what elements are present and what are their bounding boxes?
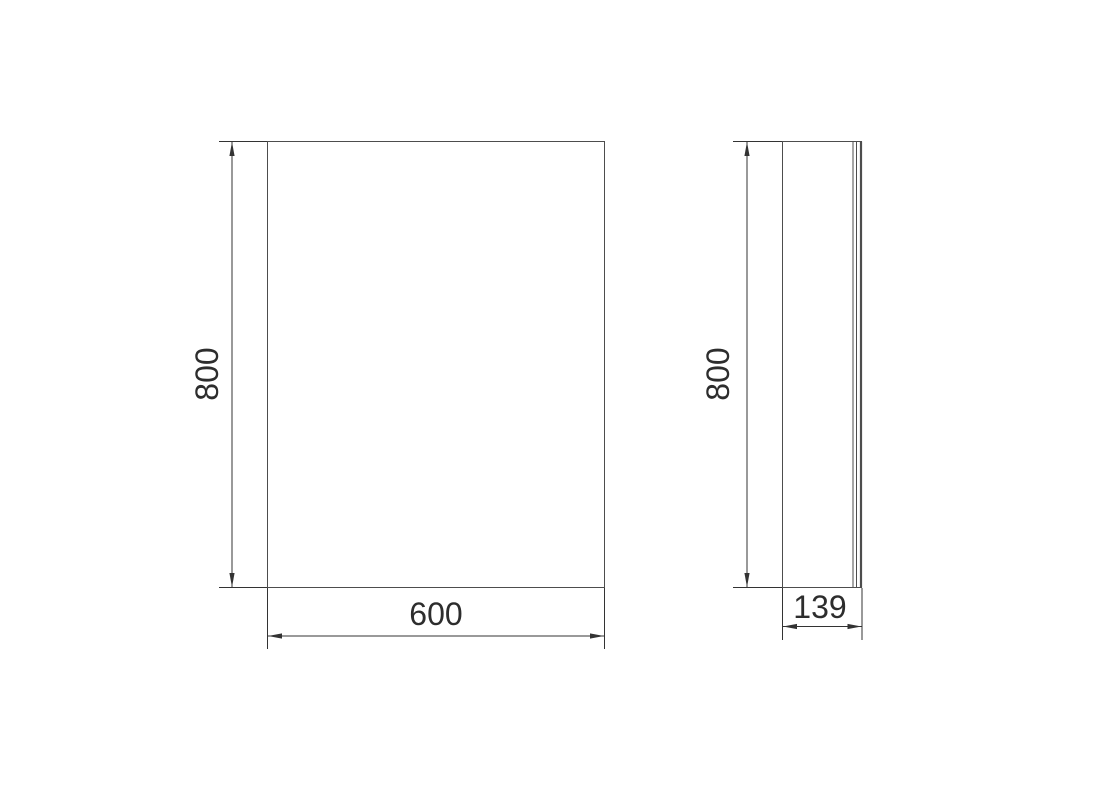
front-height-dimension (219, 142, 267, 588)
front-view (268, 142, 605, 588)
front-width-label: 600 (409, 596, 462, 632)
side-height-dimension (733, 142, 782, 588)
side-view (733, 142, 862, 588)
arrowhead-up-icon (229, 142, 234, 156)
arrowhead-down-icon (744, 573, 749, 587)
technical-drawing: 800 600 800 (0, 0, 1120, 785)
side-depth-label: 139 (793, 589, 846, 625)
arrowhead-down-icon (229, 573, 234, 587)
front-height-label: 800 (189, 347, 225, 400)
drawing-page: 800 600 800 (0, 0, 1120, 785)
side-height-label: 800 (700, 347, 736, 400)
arrowhead-right-icon (848, 624, 862, 629)
front-view-outline (268, 142, 605, 588)
arrowhead-right-icon (590, 633, 604, 638)
arrowhead-up-icon (744, 142, 749, 156)
arrowhead-left-icon (268, 633, 282, 638)
